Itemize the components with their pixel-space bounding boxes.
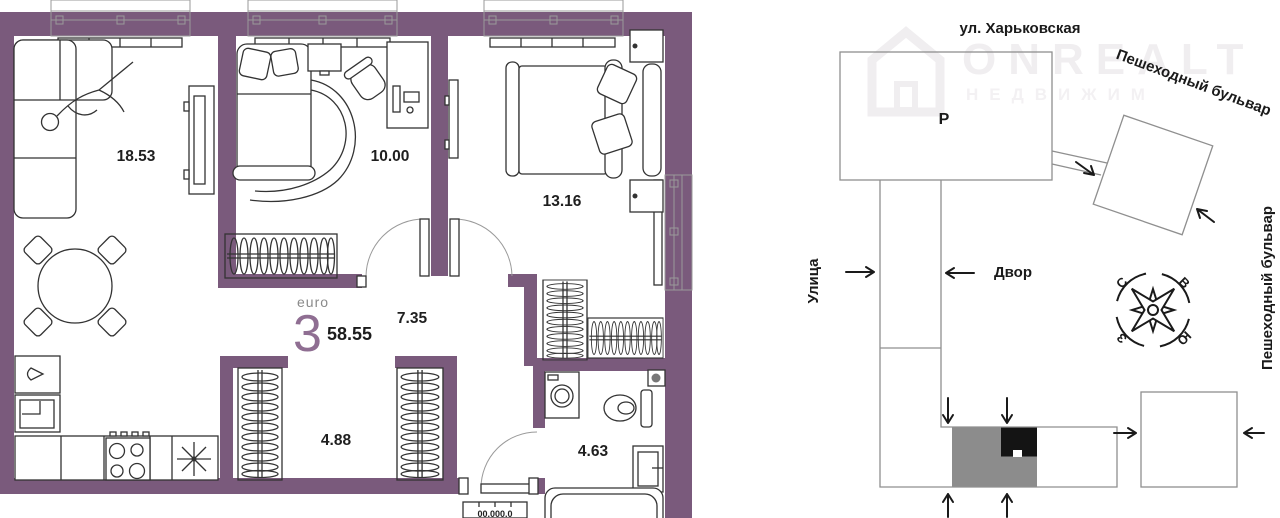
street-label-top: ул. Харьковская <box>959 20 1080 37</box>
door-bathroom <box>529 478 538 494</box>
wall-corridor-right <box>443 368 457 478</box>
bathroom-sink <box>633 446 663 492</box>
entrance-door <box>459 432 537 494</box>
entrance-mark-label: 00.000.0 <box>477 509 512 518</box>
compass-south-label: Ю <box>1174 328 1194 348</box>
kitchen-oven-cabinet <box>15 395 60 432</box>
arrow-left <box>946 268 974 278</box>
watermark: ONREALT НЕДВИЖИМ <box>872 32 1255 112</box>
room-area-label: 13.16 <box>543 193 582 210</box>
corner-sofa <box>14 40 112 218</box>
room-area-label: 10.00 <box>371 148 410 165</box>
wall-kitchen-corridor <box>220 356 233 478</box>
wall-fixture-dot <box>648 370 665 386</box>
wall-living-bedroom <box>218 36 236 276</box>
arrow-up <box>1002 494 1012 517</box>
desk <box>387 42 428 128</box>
arrow-right <box>846 267 874 277</box>
living-room <box>14 40 214 338</box>
watermark-brand: ONREALT <box>962 35 1255 84</box>
unit-type-block: euro 3 58.55 <box>293 294 372 363</box>
fridge-snowflake <box>177 442 211 476</box>
wall-corridor-niche-left <box>220 356 288 368</box>
tv-bedroom-small <box>308 44 341 75</box>
bathtub <box>545 488 663 518</box>
wall-left <box>0 12 14 494</box>
room-area-label: 4.63 <box>578 443 609 460</box>
double-bed <box>506 60 661 178</box>
room-area-label: 7.35 <box>397 310 428 327</box>
arrow-diagonal <box>1197 209 1214 222</box>
watermark-house-door <box>897 84 915 110</box>
corridor: 00.000.0 <box>238 368 537 518</box>
room-area-label: 18.53 <box>117 148 156 165</box>
tv-living <box>184 86 214 194</box>
direction-arrows <box>846 162 1264 517</box>
door-bedroom-small <box>357 219 429 287</box>
unit-rooms-count: 3 <box>293 305 322 363</box>
unit-area-value: 58.55 <box>327 324 372 344</box>
parking-label: Р <box>939 111 950 128</box>
wardrobe <box>543 280 587 360</box>
compass-center <box>1148 305 1158 315</box>
compass-rose: С В З Ю <box>1108 265 1198 355</box>
compass-west-label: З <box>1113 330 1129 346</box>
compass-east-label: В <box>1176 274 1193 291</box>
arrow-left <box>1244 428 1264 438</box>
kitchen-sink-cabinet <box>15 356 60 393</box>
floor-plan: 00.000.0 <box>0 0 692 518</box>
desk-chair <box>343 56 390 105</box>
nightstand <box>630 180 663 212</box>
plan-canvas: ONREALT НЕДВИЖИМ <box>0 0 1280 518</box>
compass-north-label: С <box>1113 274 1131 292</box>
watermark-subtitle: НЕДВИЖИМ <box>966 85 1156 104</box>
arrow-down <box>943 398 953 423</box>
dining-table <box>22 234 127 337</box>
wall-alcove-left <box>524 274 537 366</box>
wall-top <box>0 12 692 36</box>
wardrobe <box>397 368 443 480</box>
wardrobe <box>588 318 663 358</box>
arrow-up <box>943 494 953 517</box>
room-area-label: 4.88 <box>321 432 352 449</box>
toilet <box>604 390 652 427</box>
watermark-house-icon <box>872 32 940 112</box>
single-bed <box>233 44 315 180</box>
connector-line <box>1052 151 1107 163</box>
wall-corridor-niche-right <box>395 356 457 368</box>
highlighted-unit-notch <box>1013 450 1022 457</box>
wall-bedroom1-bottom <box>218 274 362 288</box>
wardrobe <box>238 368 282 480</box>
neighbor-building <box>1141 392 1237 487</box>
arrow-down <box>1002 398 1012 423</box>
kitchen <box>15 356 218 480</box>
washing-machine <box>545 372 579 418</box>
wardrobe <box>225 234 337 278</box>
courtyard-label: Двор <box>994 264 1032 281</box>
street-label-left: Улица <box>805 258 822 304</box>
wall-between-bedrooms <box>431 36 448 276</box>
stove <box>106 432 150 480</box>
wall-right <box>665 12 692 518</box>
neighbor-building-rotated <box>1093 115 1212 234</box>
real-estate-plan-image: ONREALT НЕДВИЖИМ <box>0 0 1280 518</box>
nightstand <box>630 30 663 62</box>
wall-bathroom-left <box>533 366 545 428</box>
arrow-diagonal <box>1076 162 1094 175</box>
boulevard-label-right: Пешеходный бульвар <box>1259 206 1276 370</box>
entrance-threshold: 00.000.0 <box>463 502 527 518</box>
door-bedroom-large <box>450 219 512 276</box>
